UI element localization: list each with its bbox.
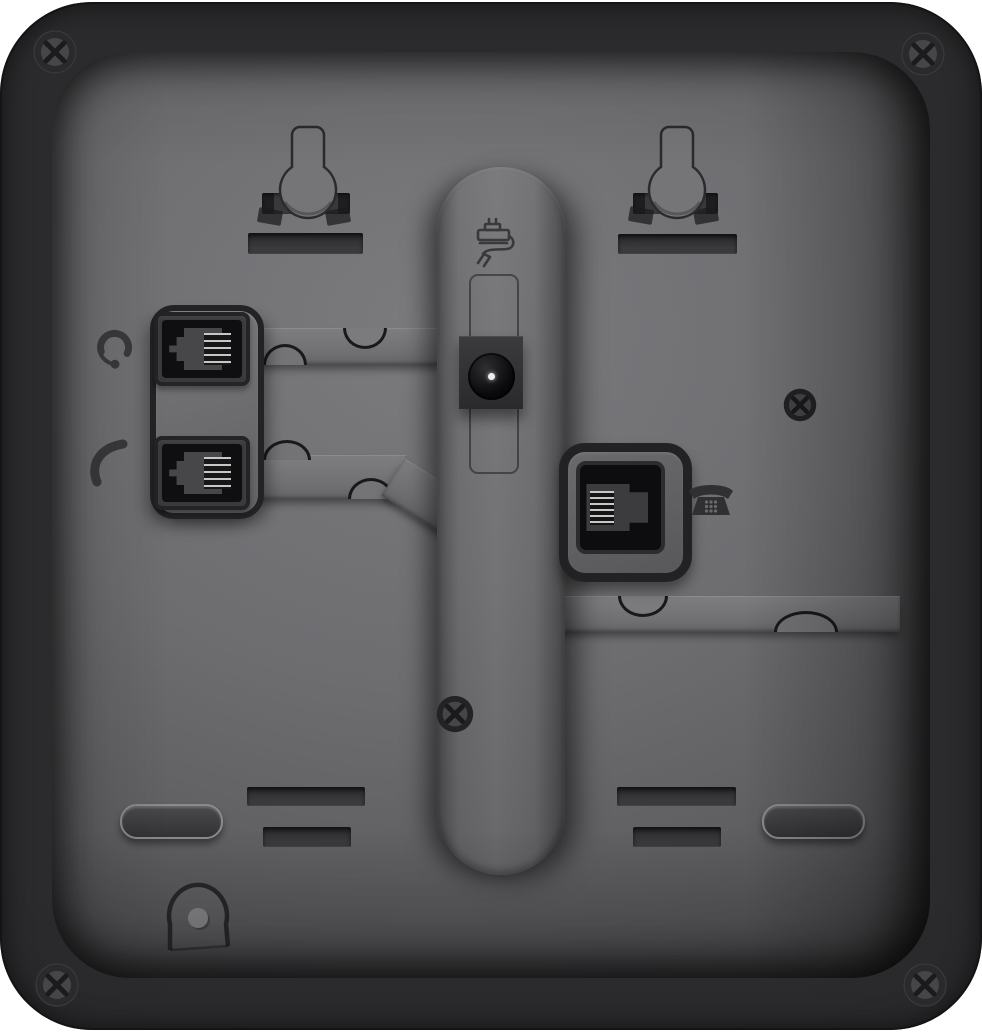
- mounting-slot: [247, 787, 365, 806]
- mounting-slot: [618, 234, 737, 254]
- mounting-slot: [617, 787, 736, 806]
- rubber-foot-right: [762, 804, 865, 839]
- phone-back-shell: [0, 2, 982, 1030]
- dc-power-jack: [459, 336, 523, 409]
- dc-center-pin: [488, 373, 495, 380]
- cable-clip-notch: [774, 611, 838, 632]
- jack-cavity: [162, 320, 242, 378]
- mounting-slot: [263, 827, 351, 847]
- handset-wall-hook: [155, 880, 241, 954]
- body-screw: [783, 388, 817, 422]
- mounting-slot: [248, 233, 363, 254]
- handset-jack: [154, 436, 250, 510]
- cable-channel-top: [243, 328, 443, 365]
- wall-mount-keyhole-right: [646, 124, 708, 228]
- cable-channel-right: [548, 596, 900, 632]
- product-photo-phone-rear: [0, 0, 982, 1032]
- handset-icon: [88, 438, 134, 488]
- phone-line-jack: [559, 443, 692, 582]
- rubber-foot-left: [120, 804, 223, 839]
- corner-screw: [902, 962, 948, 1008]
- cable-clip-notch: [343, 328, 387, 349]
- dc-barrel-socket: [468, 353, 515, 400]
- connector-pins: [204, 333, 231, 365]
- desk-phone-icon: [686, 482, 736, 518]
- corner-screw: [32, 29, 78, 75]
- connector-pins: [590, 491, 614, 525]
- headset-icon: [93, 318, 135, 372]
- mounting-slot: [633, 827, 721, 847]
- cable-clip-notch: [618, 596, 668, 617]
- headset-jack: [154, 312, 250, 386]
- connector-pins: [204, 457, 231, 489]
- jack-cavity: [162, 444, 242, 502]
- rail-screw: [436, 695, 474, 733]
- cable-clip-notch: [263, 344, 307, 365]
- wall-mount-keyhole-left: [277, 124, 339, 228]
- corner-screw: [34, 962, 80, 1008]
- jack-cavity: [576, 461, 665, 554]
- corner-screw: [900, 31, 946, 77]
- power-adapter-icon: [472, 216, 516, 270]
